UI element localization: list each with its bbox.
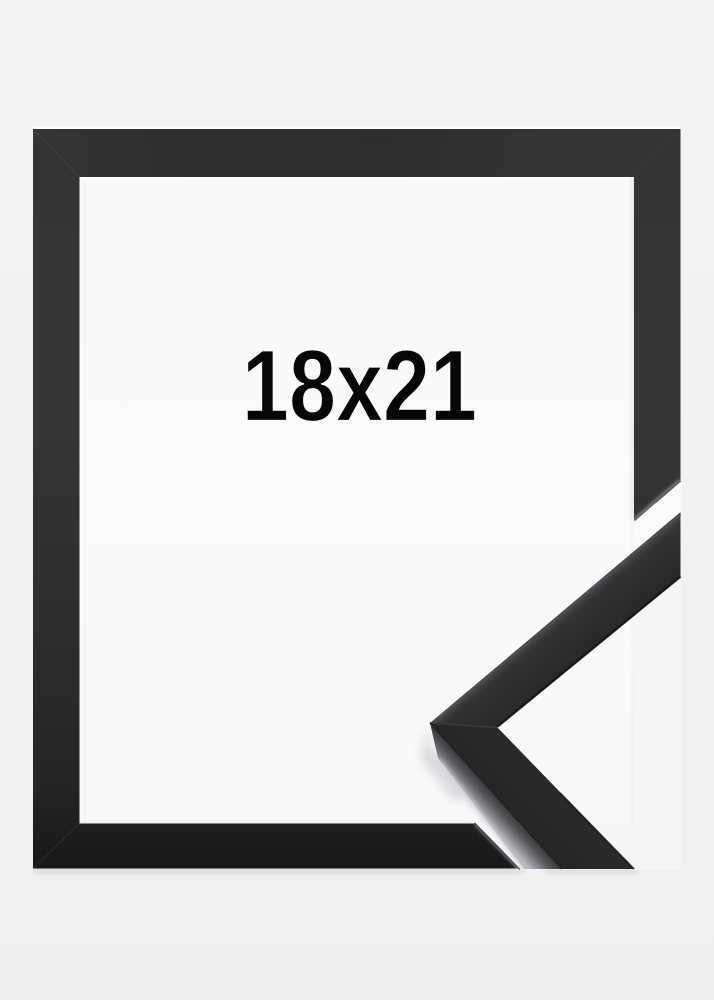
svg-text:18x21: 18x21: [242, 329, 477, 442]
